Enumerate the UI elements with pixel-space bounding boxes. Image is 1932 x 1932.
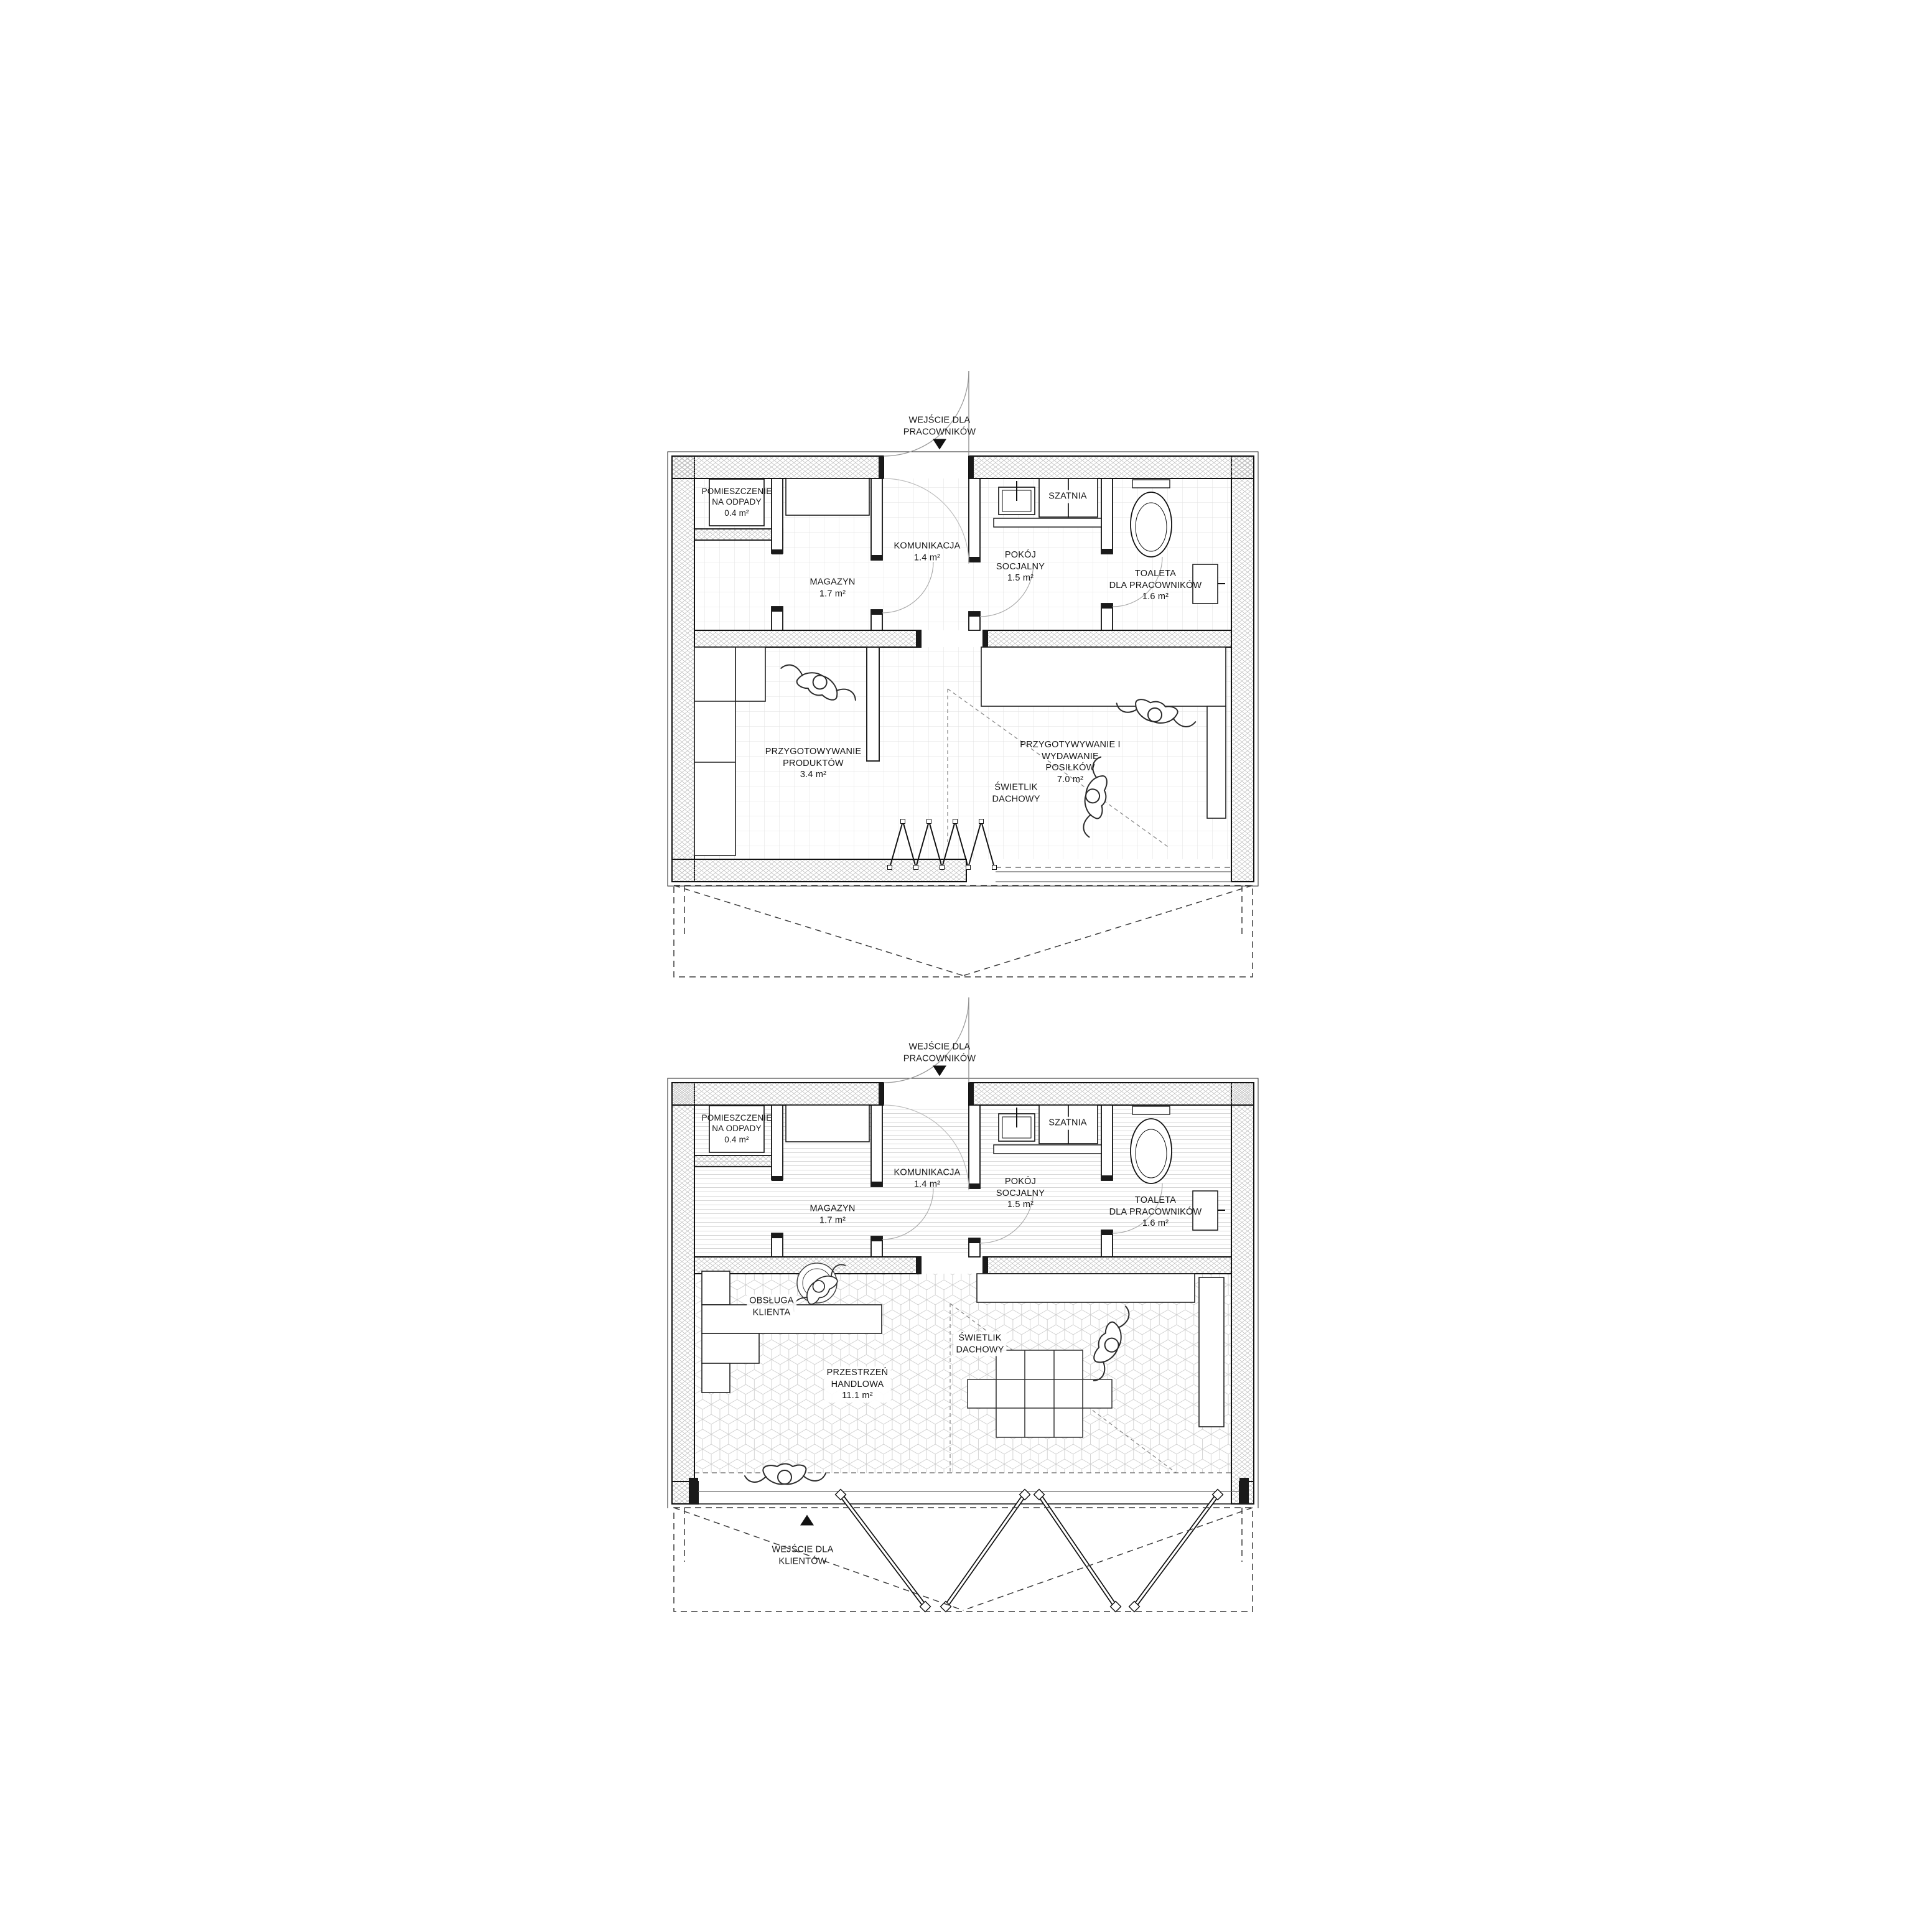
- floor-plan-lower: WEJŚCIE DLA PRACOWNIKÓW POMIESZCZENIE NA…: [660, 1011, 1282, 1627]
- room-label-circulation: KOMUNIKACJA 1.4 m²: [894, 540, 961, 563]
- skylight-label: ŚWIETLIK DACHOWY: [953, 1332, 1006, 1356]
- room-label-toilet: TOALETA DLA PRACOWNIKÓW 1.6 m²: [1109, 568, 1202, 603]
- architectural-sheet: { "colors": { "ink": "#161616", "wall_ha…: [0, 0, 1932, 1932]
- skylight-label: ŚWIETLIK DACHOWY: [992, 782, 1040, 805]
- room-label-customer-service: OBSŁUGA KLIENTA: [747, 1294, 796, 1318]
- staff-entrance-label: WEJŚCIE DLA PRACOWNIKÓW: [903, 1041, 976, 1064]
- room-label-waste: POMIESZCZENIE NA ODPADY 0.4 m²: [702, 486, 772, 518]
- room-label-social: POKÓJ SOCJALNY 1.5 m²: [996, 549, 1045, 584]
- room-label-waste: POMIESZCZENIE NA ODPADY 0.4 m²: [702, 1113, 772, 1145]
- serving-edge: [996, 867, 1231, 882]
- canopy-projection: [674, 885, 1253, 977]
- plan-drawing-lower: [660, 1011, 1282, 1627]
- room-label-storage: MAGAZYN 1.7 m²: [810, 576, 855, 599]
- staff-entrance-arrow-icon: [933, 439, 946, 450]
- staff-entrance-label: WEJŚCIE DLA PRACOWNIKÓW: [903, 414, 976, 437]
- room-label-retail: PRZESTRZEŃ HANDLOWA 11.1 m²: [824, 1366, 891, 1402]
- staff-entrance-arrow-icon: [933, 1066, 946, 1076]
- room-label-cloakroom: SZATNIA: [1046, 490, 1090, 503]
- customer-entrance-label: WEJŚCIE DLA KLIENTÓW: [772, 1544, 834, 1567]
- room-label-product-prep: PRZYGOTOWYWANIE PRODUKTÓW 3.4 m²: [765, 746, 861, 781]
- room-label-cloakroom: SZATNIA: [1046, 1117, 1090, 1130]
- canopy-projection: [674, 1508, 1253, 1612]
- plan-drawing-upper: [660, 383, 1282, 992]
- floor-plan-upper: WEJŚCIE DLA PRACOWNIKÓW POMIESZCZENIE NA…: [660, 383, 1282, 992]
- room-label-social: POKÓJ SOCJALNY 1.5 m²: [996, 1176, 1045, 1211]
- room-label-circulation: KOMUNIKACJA 1.4 m²: [894, 1167, 961, 1190]
- room-label-storage: MAGAZYN 1.7 m²: [810, 1203, 855, 1226]
- customer-entrance-arrow-icon: [800, 1515, 814, 1526]
- room-label-toilet: TOALETA DLA PRACOWNIKÓW 1.6 m²: [1109, 1195, 1202, 1230]
- room-label-meal-prep: PRZYGOTYWYWANIE I WYDAWANIE POSIŁKÓW 7.0…: [1020, 739, 1121, 785]
